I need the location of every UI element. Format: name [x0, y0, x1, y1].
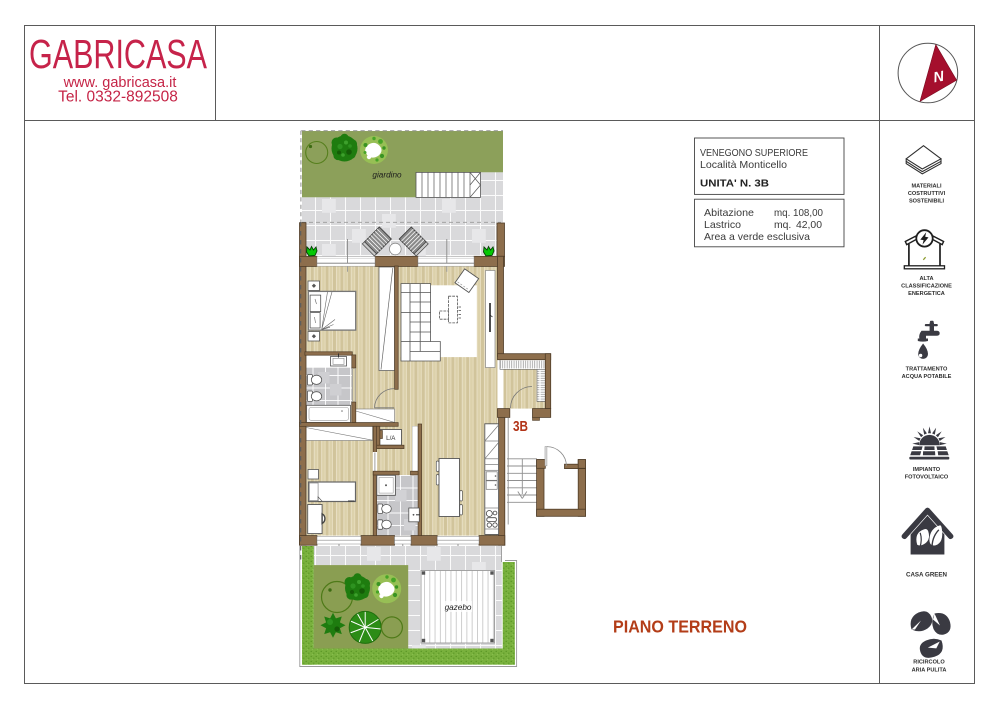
svg-text:ENERGETICA: ENERGETICA	[908, 291, 945, 297]
svg-text:GABRICASA: GABRICASA	[29, 31, 207, 77]
svg-text:UNITA' N. 3B: UNITA' N. 3B	[700, 179, 770, 190]
svg-text:MATERIALI: MATERIALI	[911, 184, 941, 190]
svg-text:SOSTENIBILI: SOSTENIBILI	[909, 199, 945, 205]
svg-text:42,00: 42,00	[796, 220, 822, 231]
svg-text:ACQUA POTABILE: ACQUA POTABILE	[902, 374, 952, 380]
svg-text:ARIA PULITA: ARIA PULITA	[912, 668, 947, 674]
svg-text:ALTA: ALTA	[919, 276, 933, 282]
svg-text:CLASSIFICAZIONE: CLASSIFICAZIONE	[901, 284, 952, 290]
svg-text:mq.: mq.	[774, 220, 791, 231]
svg-text:3B: 3B	[513, 418, 528, 435]
svg-text:L/A: L/A	[386, 435, 396, 442]
svg-text:IMPIANTO: IMPIANTO	[913, 467, 941, 473]
svg-text:VENEGONO SUPERIORE: VENEGONO SUPERIORE	[700, 148, 808, 159]
svg-text:TRATTAMENTO: TRATTAMENTO	[906, 367, 948, 373]
svg-text:CASA GREEN: CASA GREEN	[906, 572, 948, 579]
svg-text:COSTRUTTIVI: COSTRUTTIVI	[908, 191, 946, 197]
svg-text:Area a verde esclusiva: Area a verde esclusiva	[704, 232, 810, 243]
svg-text:Località Monticello: Località Monticello	[700, 160, 787, 171]
svg-text:Lastrico: Lastrico	[704, 220, 741, 231]
svg-text:Abitazione: Abitazione	[704, 208, 754, 219]
svg-text:giardino: giardino	[372, 171, 402, 180]
svg-text:PIANO TERRENO: PIANO TERRENO	[613, 617, 747, 637]
svg-text:FOTOVOLTAICO: FOTOVOLTAICO	[905, 475, 949, 481]
svg-text:Tel. 0332-892508: Tel. 0332-892508	[58, 89, 178, 106]
svg-text:gazebo: gazebo	[445, 603, 472, 612]
svg-text:RICIRCOLO: RICIRCOLO	[913, 660, 945, 666]
svg-text:mq. 108,00: mq. 108,00	[774, 208, 823, 219]
